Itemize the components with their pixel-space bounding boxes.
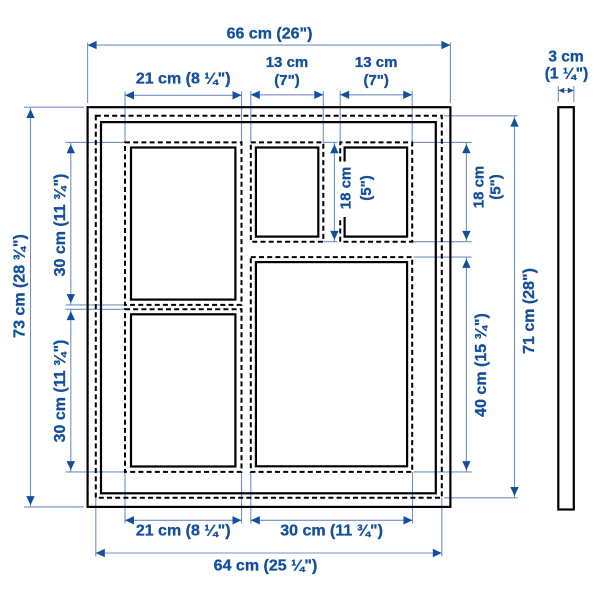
svg-text:(5"): (5") [488,174,505,199]
svg-text:21 cm (8 ¼"): 21 cm (8 ¼") [136,522,231,539]
svg-text:73 cm (28 ¾"): 73 cm (28 ¾") [12,234,29,338]
svg-text:71 cm (28"): 71 cm (28") [521,268,538,354]
svg-text:(7"): (7") [363,72,388,89]
svg-text:30 cm (11 ¾"): 30 cm (11 ¾") [52,174,69,277]
svg-text:21 cm (8 ¼"): 21 cm (8 ¼") [136,71,231,88]
svg-text:13 cm: 13 cm [355,54,398,71]
svg-text:64 cm (25 ¼"): 64 cm (25 ¼") [214,558,318,575]
svg-text:30 cm (11 ¾"): 30 cm (11 ¾") [280,522,383,539]
svg-text:66 cm (26"): 66 cm (26") [227,26,313,43]
svg-text:(7"): (7") [274,72,299,89]
svg-text:30 cm (11 ¾"): 30 cm (11 ¾") [52,340,69,443]
svg-text:18 cm: 18 cm [338,167,355,210]
svg-text:3 cm: 3 cm [548,49,583,66]
svg-text:40 cm (15 ¾"): 40 cm (15 ¾") [473,313,490,417]
svg-text:(1 ¼"): (1 ¼") [545,66,589,83]
svg-text:(5"): (5") [358,175,375,200]
svg-text:13 cm: 13 cm [266,54,309,71]
svg-text:18 cm: 18 cm [471,166,488,209]
